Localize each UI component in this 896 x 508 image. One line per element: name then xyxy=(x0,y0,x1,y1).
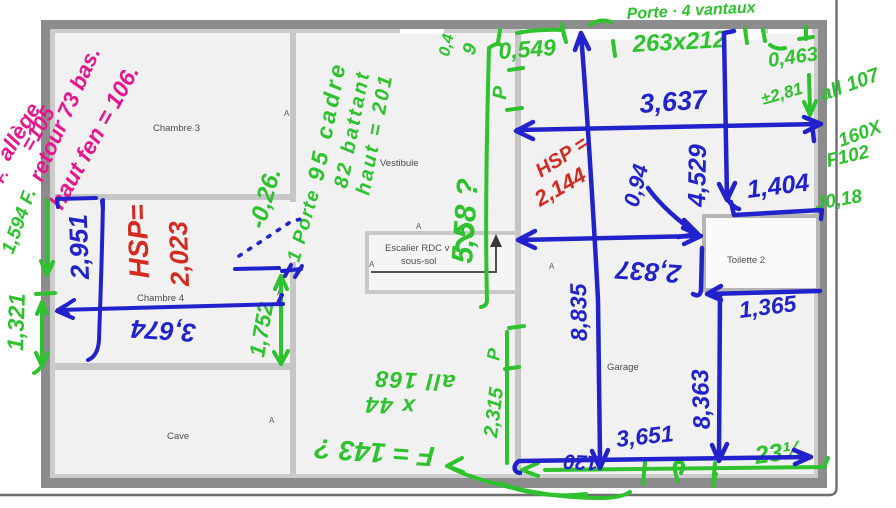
svg-text:A: A xyxy=(369,260,375,269)
svg-text:sous-sol: sous-sol xyxy=(401,256,436,267)
svg-text:Chambre 4: Chambre 4 xyxy=(137,293,184,304)
svg-text:x 44: x 44 xyxy=(364,392,418,421)
svg-text:8,363: 8,363 xyxy=(687,368,716,430)
svg-text:2,951: 2,951 xyxy=(63,214,95,281)
svg-text:HSP=: HSP= xyxy=(121,204,155,279)
svg-text:5,58 ?: 5,58 ? xyxy=(446,177,485,264)
svg-text:all 168: all 168 xyxy=(374,366,456,396)
svg-text:A: A xyxy=(549,262,555,271)
svg-text:Garage: Garage xyxy=(607,362,639,373)
svg-text:120 ·: 120 · xyxy=(550,449,599,474)
svg-text:3,674: 3,674 xyxy=(129,314,197,349)
svg-text:263x212: 263x212 xyxy=(631,26,727,58)
svg-text:Escalier RDC v: Escalier RDC v xyxy=(385,243,450,254)
svg-text:A: A xyxy=(416,222,422,231)
svg-text:0,549: 0,549 xyxy=(498,34,557,64)
svg-text:8,835: 8,835 xyxy=(565,282,592,341)
svg-text:A: A xyxy=(269,416,275,425)
svg-text:4,529: 4,529 xyxy=(683,144,712,208)
svg-text:2,023: 2,023 xyxy=(163,220,195,288)
svg-text:Cave: Cave xyxy=(167,431,189,442)
svg-text:2,837: 2,837 xyxy=(613,255,683,290)
svg-text:1,321: 1,321 xyxy=(2,293,30,351)
svg-text:3,637: 3,637 xyxy=(638,84,709,119)
svg-text:Vestibule: Vestibule xyxy=(380,158,419,169)
svg-text:Toilette 2: Toilette 2 xyxy=(727,255,765,266)
svg-text:P: P xyxy=(489,85,512,101)
svg-text:A: A xyxy=(284,109,290,118)
svg-text:Chambre 3: Chambre 3 xyxy=(153,123,200,134)
